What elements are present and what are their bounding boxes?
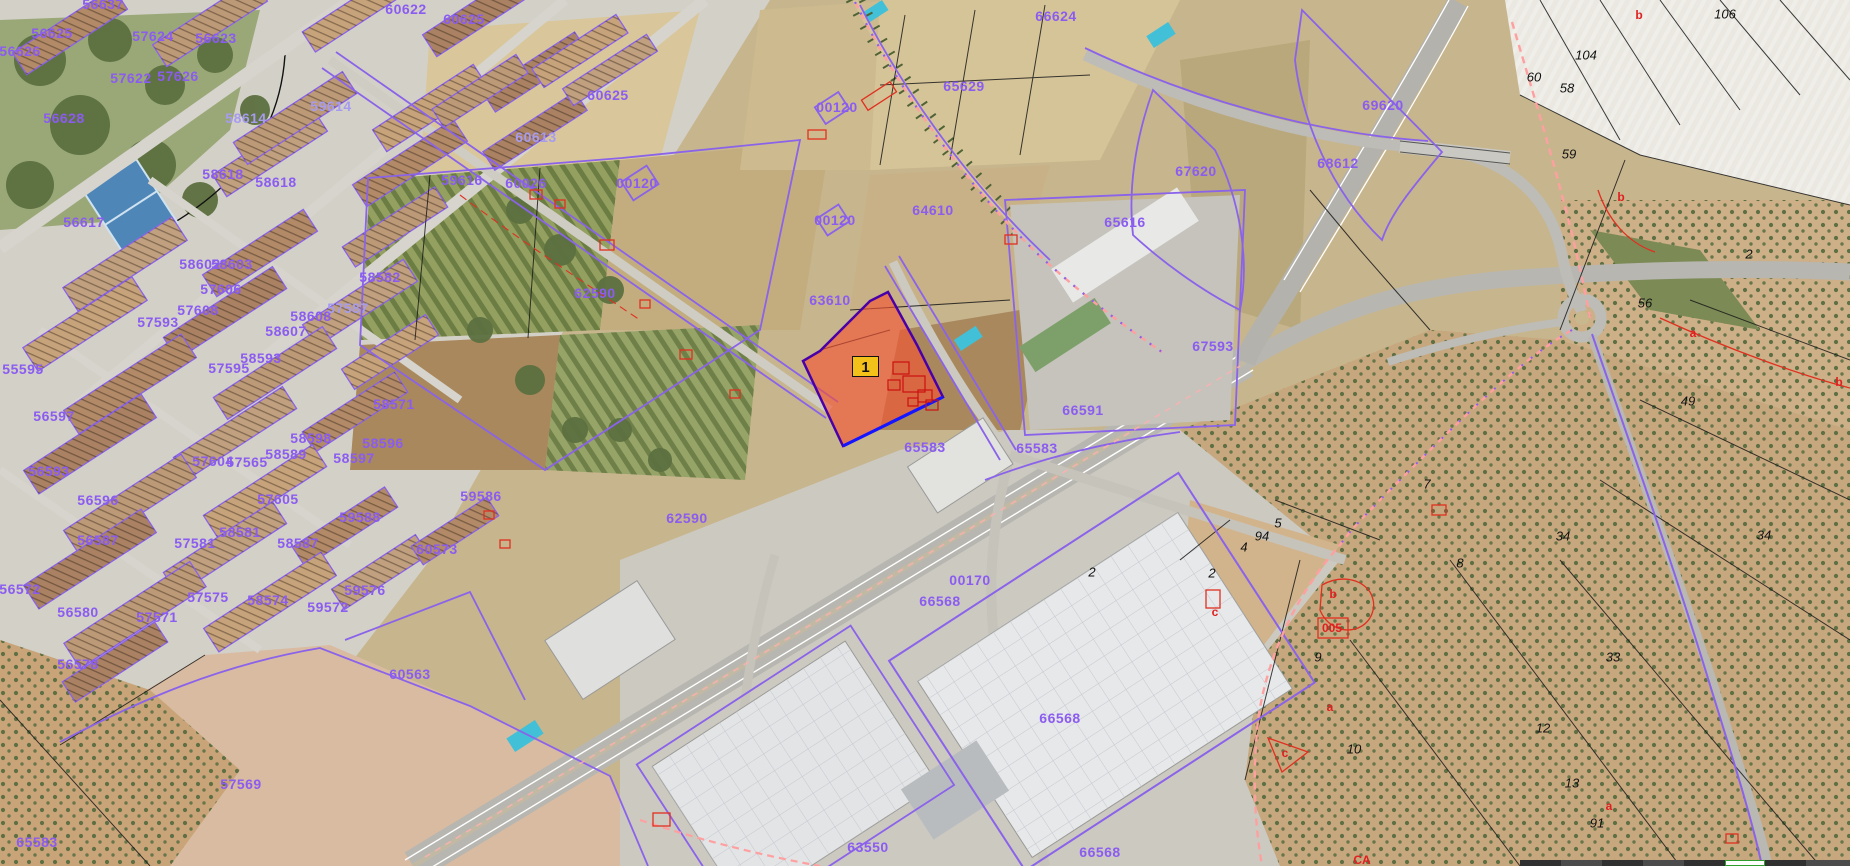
parcel-index-badge[interactable]: 1: [852, 356, 879, 377]
cadastral-map[interactable]: 5663756625576245662356626576225762660622…: [0, 0, 1850, 866]
aerial-imagery-layer: [0, 0, 1850, 866]
scale-bar-segment: [1684, 860, 1725, 866]
scale-bar-segment: [1806, 860, 1850, 866]
scale-bar-segment: [1643, 860, 1684, 866]
scale-bar-segment: [1602, 860, 1643, 866]
scale-bar-segment: [1561, 860, 1602, 866]
scale-bar-segment: [1520, 860, 1561, 866]
scale-bar-segment: [1765, 860, 1806, 866]
scale-bar-segment: [1725, 860, 1765, 866]
